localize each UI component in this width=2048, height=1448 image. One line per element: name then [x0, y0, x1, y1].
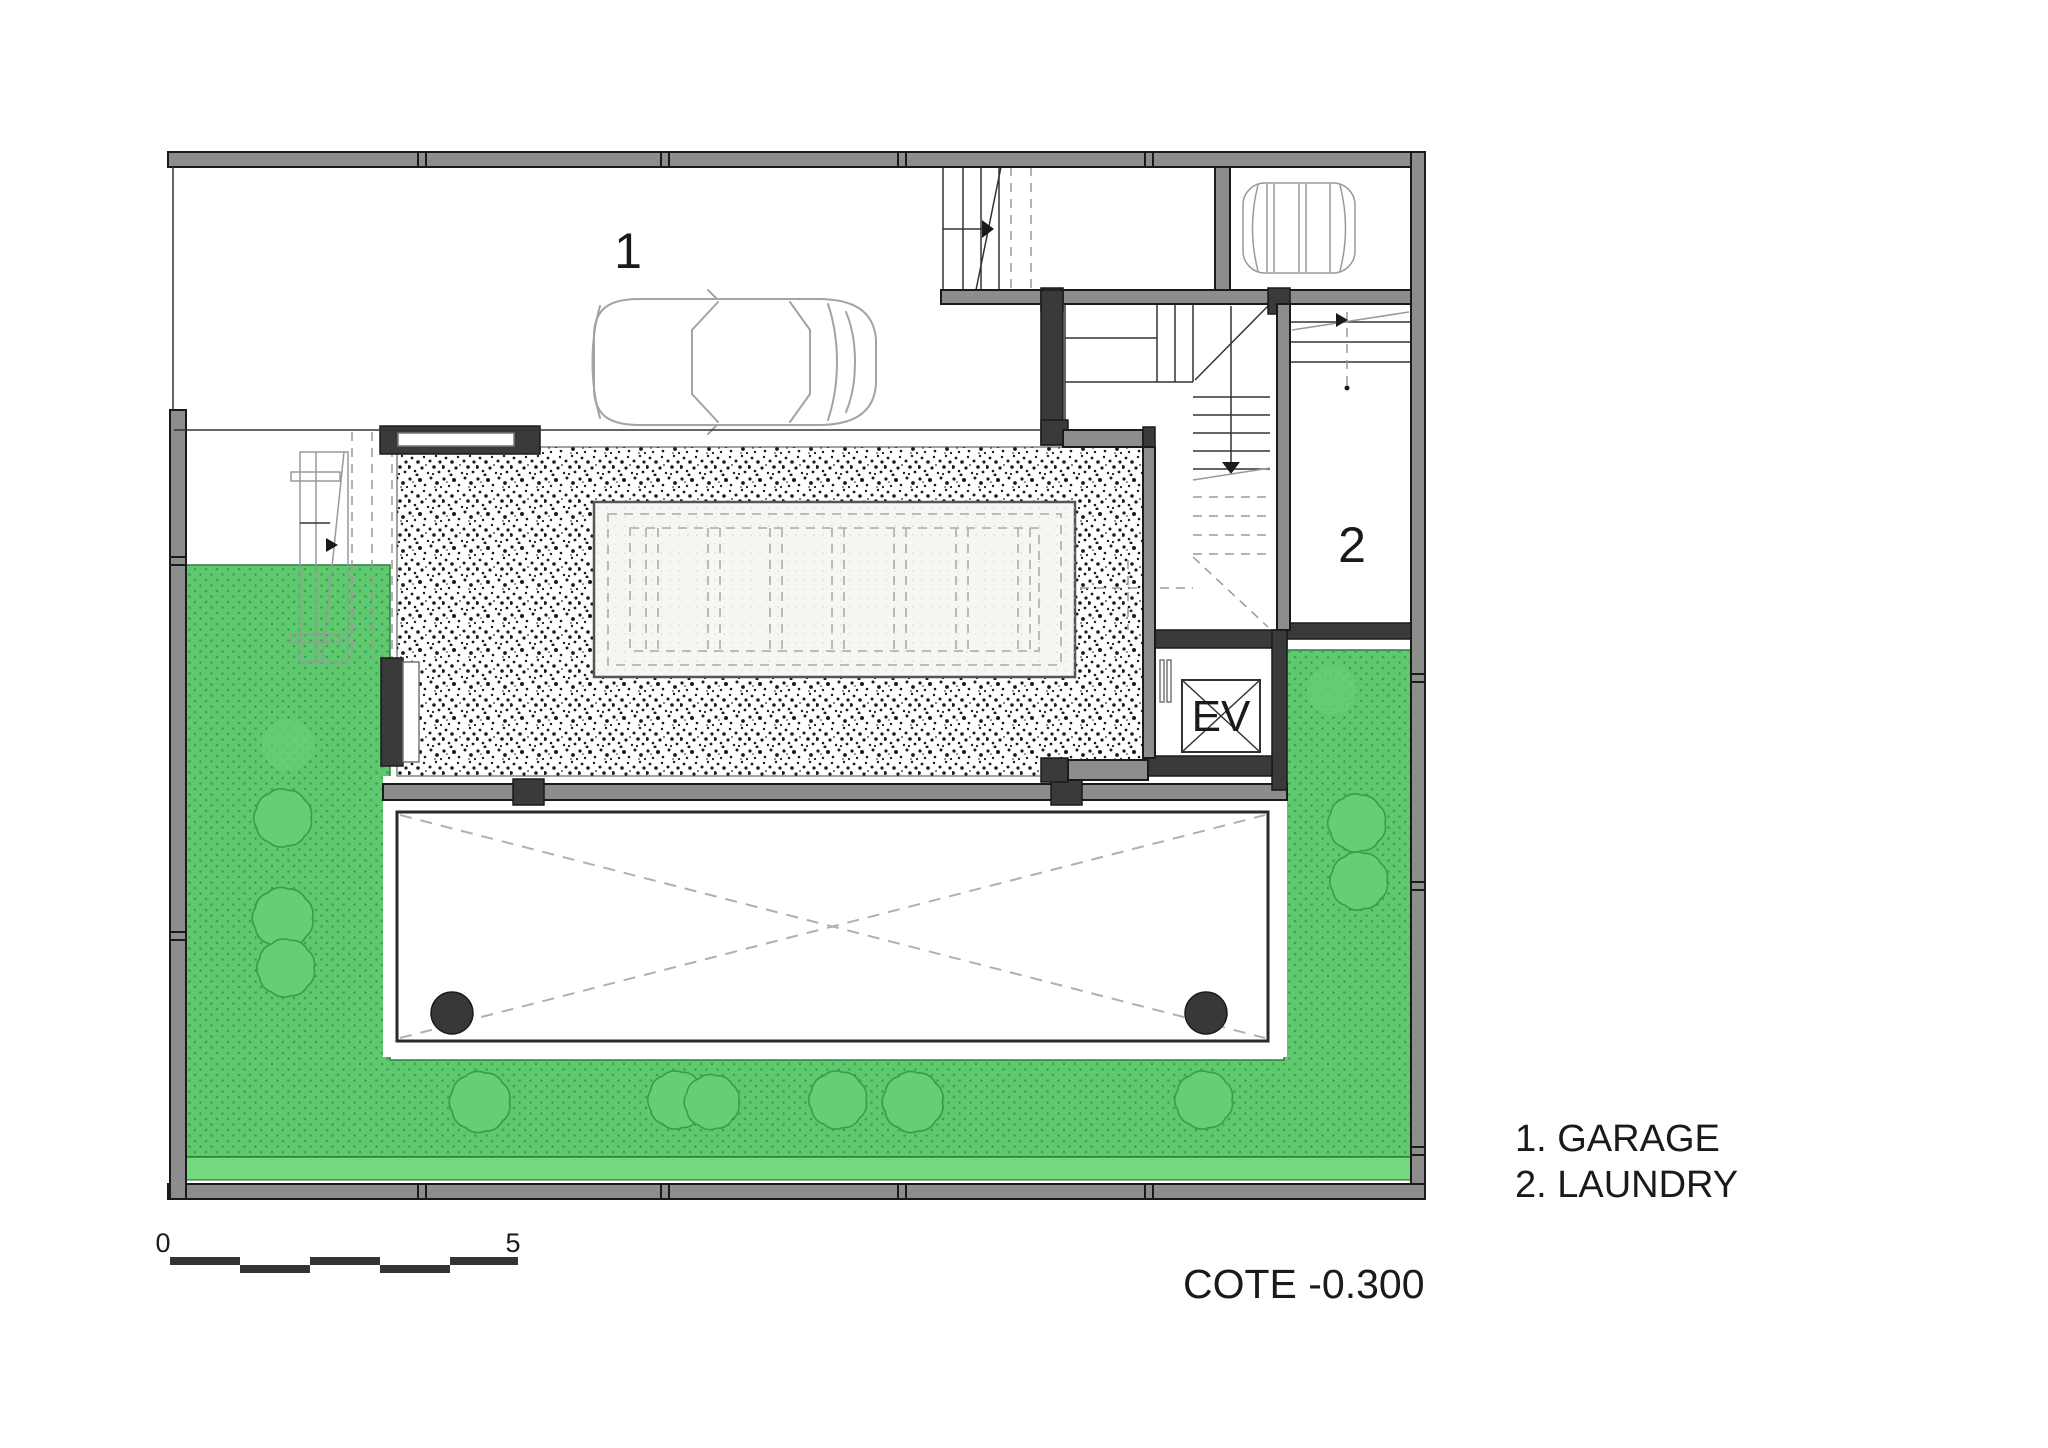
- laundry-number-label: 2: [1338, 517, 1366, 573]
- elevation-label: COTE -0.300: [1183, 1261, 1425, 1307]
- elevator-door: [1167, 660, 1171, 702]
- tank-room-wall: [1215, 167, 1230, 290]
- shrub-icon: [1330, 852, 1388, 910]
- shrub-icon: [1175, 1071, 1233, 1129]
- north-wall: [168, 152, 1425, 167]
- west-wall: [170, 410, 186, 1199]
- elevator-east-wall: [1272, 630, 1287, 790]
- skylight: [594, 502, 1075, 677]
- side-window: [381, 658, 419, 766]
- shrub-icon: [809, 1071, 867, 1129]
- east-wall: [1411, 152, 1425, 1199]
- column: [431, 992, 473, 1034]
- legend-item-garage: 1. GARAGE: [1515, 1118, 1720, 1160]
- wall-stub: [513, 779, 544, 805]
- gravel-court: [397, 447, 1143, 776]
- gravel-east-wall: [1143, 447, 1155, 758]
- garden-path-band: [186, 1157, 1411, 1180]
- elevator-south-wall: [1148, 756, 1272, 776]
- column: [1185, 992, 1227, 1034]
- laundry-south-wall: [1287, 623, 1411, 639]
- shrub-icon: [1328, 794, 1386, 852]
- elevator-north-wall: [1148, 630, 1287, 648]
- laundry-west-wall: [1277, 304, 1290, 630]
- shrub-icon: [1307, 665, 1356, 714]
- legend-item-laundry: 2. LAUNDRY: [1515, 1164, 1738, 1206]
- elevator-door: [1160, 660, 1164, 702]
- garage-number-label: 1: [614, 223, 642, 279]
- scale-start-label: 0: [155, 1228, 170, 1258]
- south-wall: [168, 1184, 1425, 1199]
- shrub-icon: [262, 719, 314, 771]
- shrub-icon: [257, 939, 315, 997]
- shrub-icon: [449, 1071, 510, 1132]
- courtyard: [383, 776, 1287, 1057]
- shrub-icon: [882, 1071, 943, 1132]
- floor-plan-sheet: EV: [0, 0, 2048, 1448]
- wall-stub: [1051, 779, 1082, 805]
- elevator-label: EV: [1192, 692, 1251, 741]
- mid-wall: [941, 290, 1411, 304]
- shrub-icon: [684, 1074, 739, 1129]
- floor-plan-drawing: EV: [0, 0, 2048, 1448]
- scale-end-label: 5: [505, 1228, 520, 1258]
- shrub-icon: [254, 789, 312, 847]
